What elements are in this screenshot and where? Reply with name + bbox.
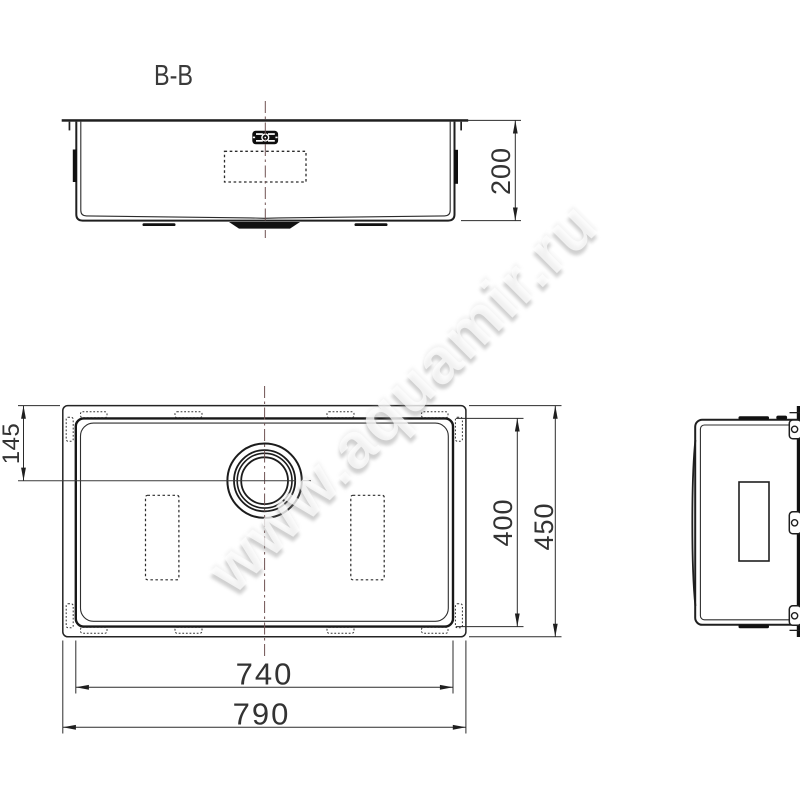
svg-text:450: 450 <box>529 502 559 550</box>
svg-text:B-B: B-B <box>154 60 193 92</box>
svg-text:145: 145 <box>0 423 25 465</box>
svg-text:400: 400 <box>488 498 518 546</box>
svg-text:790: 790 <box>233 697 291 732</box>
svg-text:740: 740 <box>236 657 294 692</box>
svg-text:200: 200 <box>486 147 516 195</box>
